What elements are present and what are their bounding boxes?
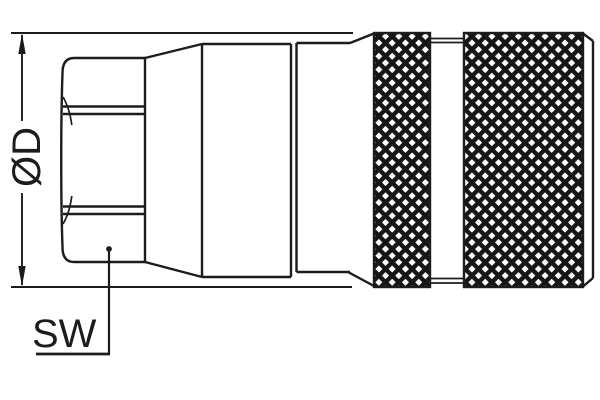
wrench-size-label: SW xyxy=(32,312,97,356)
hex-nut-silhouette xyxy=(61,58,145,262)
knurled-band-front xyxy=(374,33,430,287)
cone-edge-top xyxy=(145,44,202,58)
hex-nut xyxy=(61,58,145,262)
technical-drawing-page: ØD xyxy=(0,0,600,400)
body-cone xyxy=(145,44,202,277)
sleeve xyxy=(202,44,291,277)
coupling-technical-drawing: ØD xyxy=(0,0,600,400)
knurl-chamfer-bottom xyxy=(348,272,374,286)
knurled-band-rear xyxy=(464,33,583,287)
knurl-groove xyxy=(430,39,464,284)
end-cap-chamfer-top xyxy=(583,34,593,42)
diameter-dimension: ØD xyxy=(5,33,353,287)
end-cap-chamfer-bottom xyxy=(583,278,593,287)
arrowhead-up-icon xyxy=(18,34,25,55)
diameter-label: ØD xyxy=(5,127,49,187)
knurl-chamfer-top xyxy=(350,34,374,44)
end-cap xyxy=(583,34,593,287)
arrowhead-down-icon xyxy=(18,266,25,287)
cone-edge-bottom xyxy=(145,262,202,277)
retaining-ring xyxy=(297,34,375,287)
